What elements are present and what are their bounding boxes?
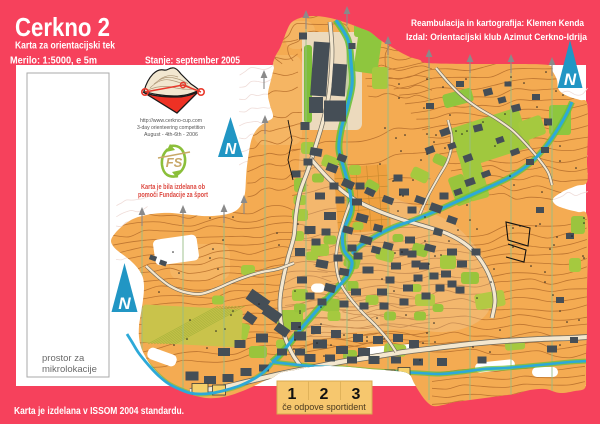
svg-text:Izdal: Orientacijski klub Azim: Izdal: Orientacijski klub Azimut Cerkno-… xyxy=(406,32,588,43)
svg-text:N: N xyxy=(564,70,577,89)
svg-text:Karta je bila izdelana ob: Karta je bila izdelana ob xyxy=(141,184,205,191)
svg-text:mikrolokacije: mikrolokacije xyxy=(42,364,97,375)
svg-text:če odpove sportident: če odpove sportident xyxy=(282,402,366,412)
svg-text:FS: FS xyxy=(166,155,183,170)
svg-text:2: 2 xyxy=(320,386,329,403)
svg-text:Karta za orientacijski tek: Karta za orientacijski tek xyxy=(15,40,115,52)
svg-text:Stanje: september 2005: Stanje: september 2005 xyxy=(145,55,240,67)
svg-text:Reambulacija in kartografija:: Reambulacija in kartografija: Klemen Ken… xyxy=(411,18,585,29)
svg-text:N: N xyxy=(225,141,237,158)
svg-text:pomoči Fundacije za šport: pomoči Fundacije za šport xyxy=(138,192,209,199)
svg-text:prostor za: prostor za xyxy=(42,353,85,364)
svg-text:http://www.cerkno-cup.com: http://www.cerkno-cup.com xyxy=(140,118,202,124)
svg-text:1: 1 xyxy=(288,386,297,403)
svg-text:August - 4th-6th - 2006: August - 4th-6th - 2006 xyxy=(144,132,198,138)
svg-text:Cerkno 2: Cerkno 2 xyxy=(15,12,110,42)
svg-text:3-day orienteering competition: 3-day orienteering competition xyxy=(137,125,205,131)
svg-text:Karta je izdelana v ISSOM 2004: Karta je izdelana v ISSOM 2004 standardu… xyxy=(14,406,184,417)
svg-text:Merilo: 1:5000, e 5m: Merilo: 1:5000, e 5m xyxy=(10,55,97,67)
svg-text:3: 3 xyxy=(352,386,361,403)
svg-text:N: N xyxy=(118,294,131,313)
